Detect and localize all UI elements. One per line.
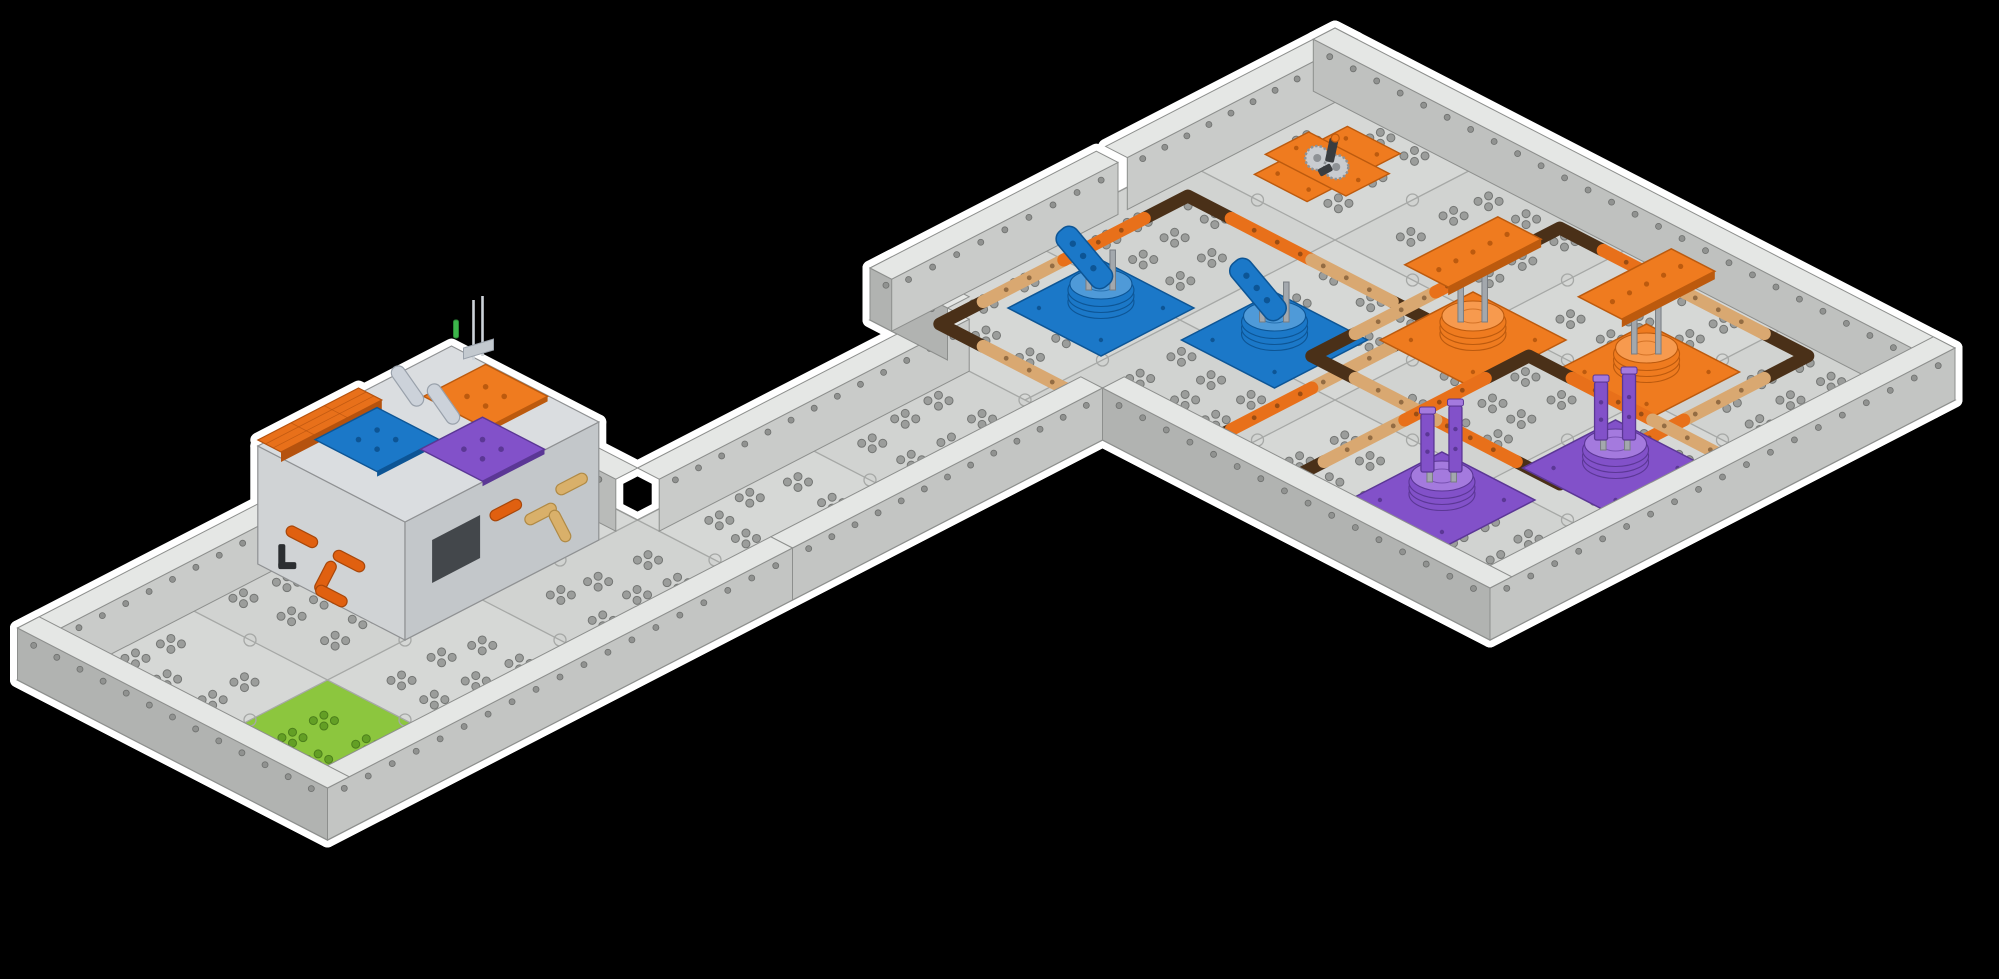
tower-beam xyxy=(1421,414,1434,472)
tower-beam xyxy=(1449,406,1462,472)
green-pin xyxy=(454,320,459,338)
tower-beam xyxy=(1623,374,1636,440)
tower-beam xyxy=(1595,382,1608,440)
field-render xyxy=(0,0,1999,979)
scene xyxy=(0,0,1999,979)
